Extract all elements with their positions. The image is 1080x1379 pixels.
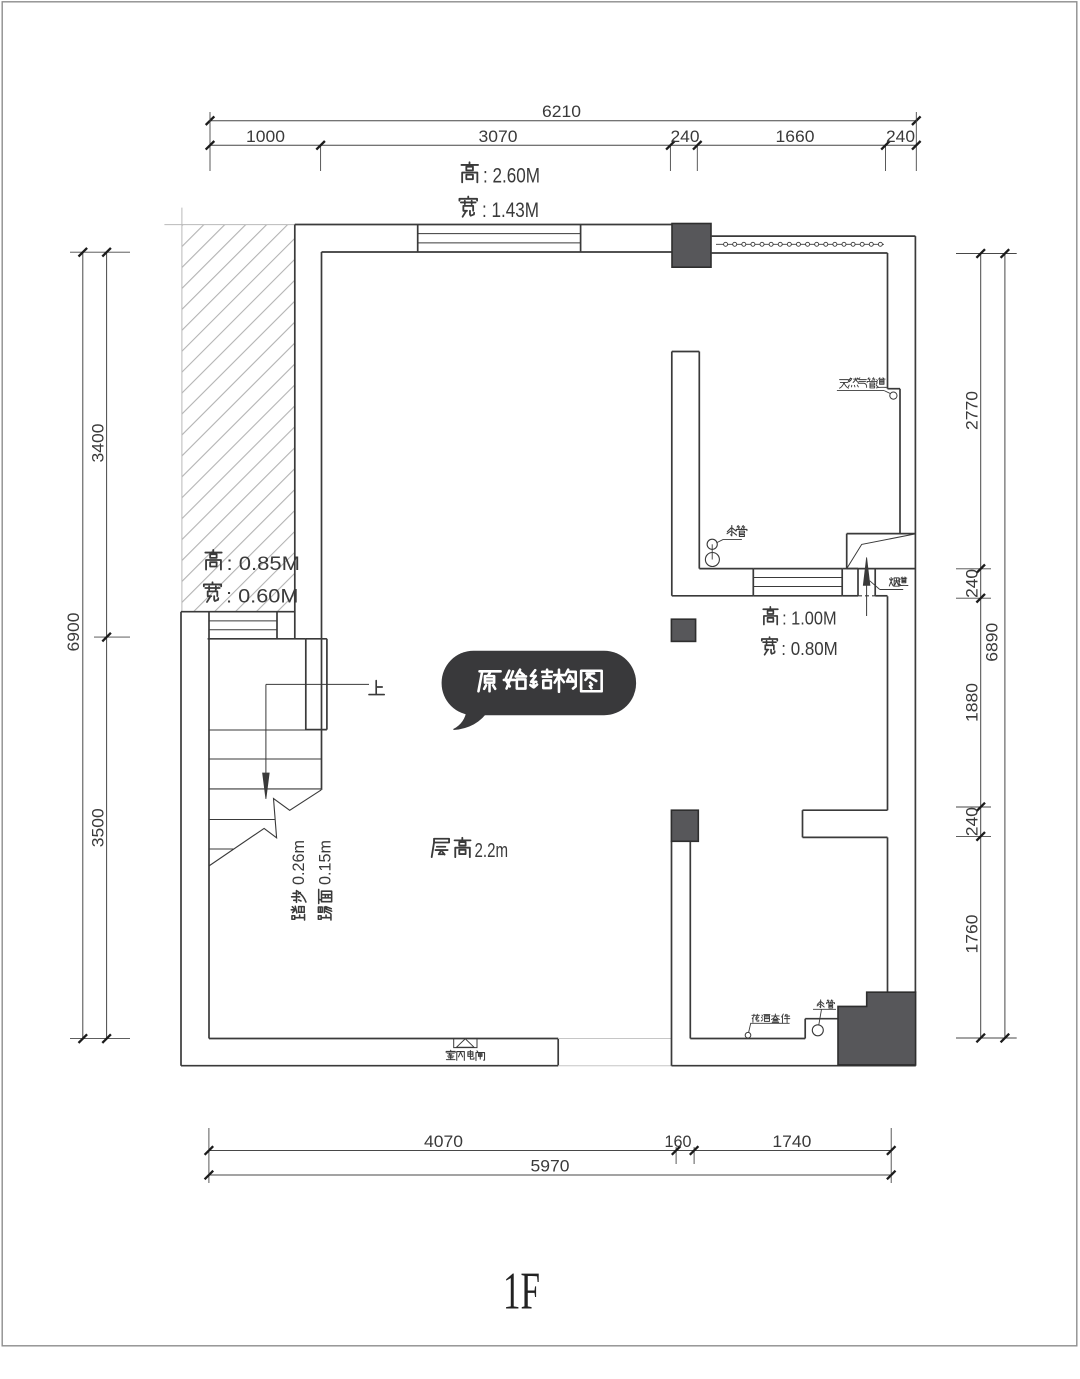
svg-text:1740: 1740 [772, 1132, 811, 1151]
svg-text:2770: 2770 [962, 391, 981, 430]
svg-text:160: 160 [665, 1132, 692, 1151]
svg-text:3400: 3400 [88, 424, 107, 463]
svg-text:3070: 3070 [479, 127, 518, 146]
svg-text:1F: 1F [503, 1263, 540, 1321]
svg-text:1000: 1000 [246, 127, 285, 146]
svg-text:3500: 3500 [88, 808, 107, 847]
svg-text:240: 240 [671, 127, 700, 146]
svg-text:0.15m: 0.15m [317, 840, 335, 885]
svg-text:: 0.60M: : 0.60M [226, 587, 299, 608]
svg-text:: 2.60M: : 2.60M [483, 163, 540, 187]
svg-text:240: 240 [886, 127, 915, 146]
svg-text:4070: 4070 [424, 1132, 463, 1151]
svg-text:1660: 1660 [776, 127, 815, 146]
svg-text:240: 240 [962, 807, 981, 836]
svg-text:5970: 5970 [531, 1157, 570, 1176]
svg-text:6900: 6900 [64, 613, 83, 652]
svg-text:2.2m: 2.2m [475, 840, 509, 862]
svg-text:240: 240 [962, 569, 981, 598]
svg-text:0.26m: 0.26m [290, 840, 308, 885]
svg-text:1760: 1760 [962, 915, 981, 954]
svg-text:6890: 6890 [983, 623, 1002, 662]
svg-text:: 1.00M: : 1.00M [782, 608, 837, 629]
svg-text:: 1.43M: : 1.43M [482, 198, 539, 222]
svg-text:6210: 6210 [542, 102, 581, 121]
svg-text:1880: 1880 [962, 683, 981, 722]
svg-text:: 0.85M: : 0.85M [227, 554, 301, 575]
svg-text:: 0.80M: : 0.80M [781, 638, 838, 659]
